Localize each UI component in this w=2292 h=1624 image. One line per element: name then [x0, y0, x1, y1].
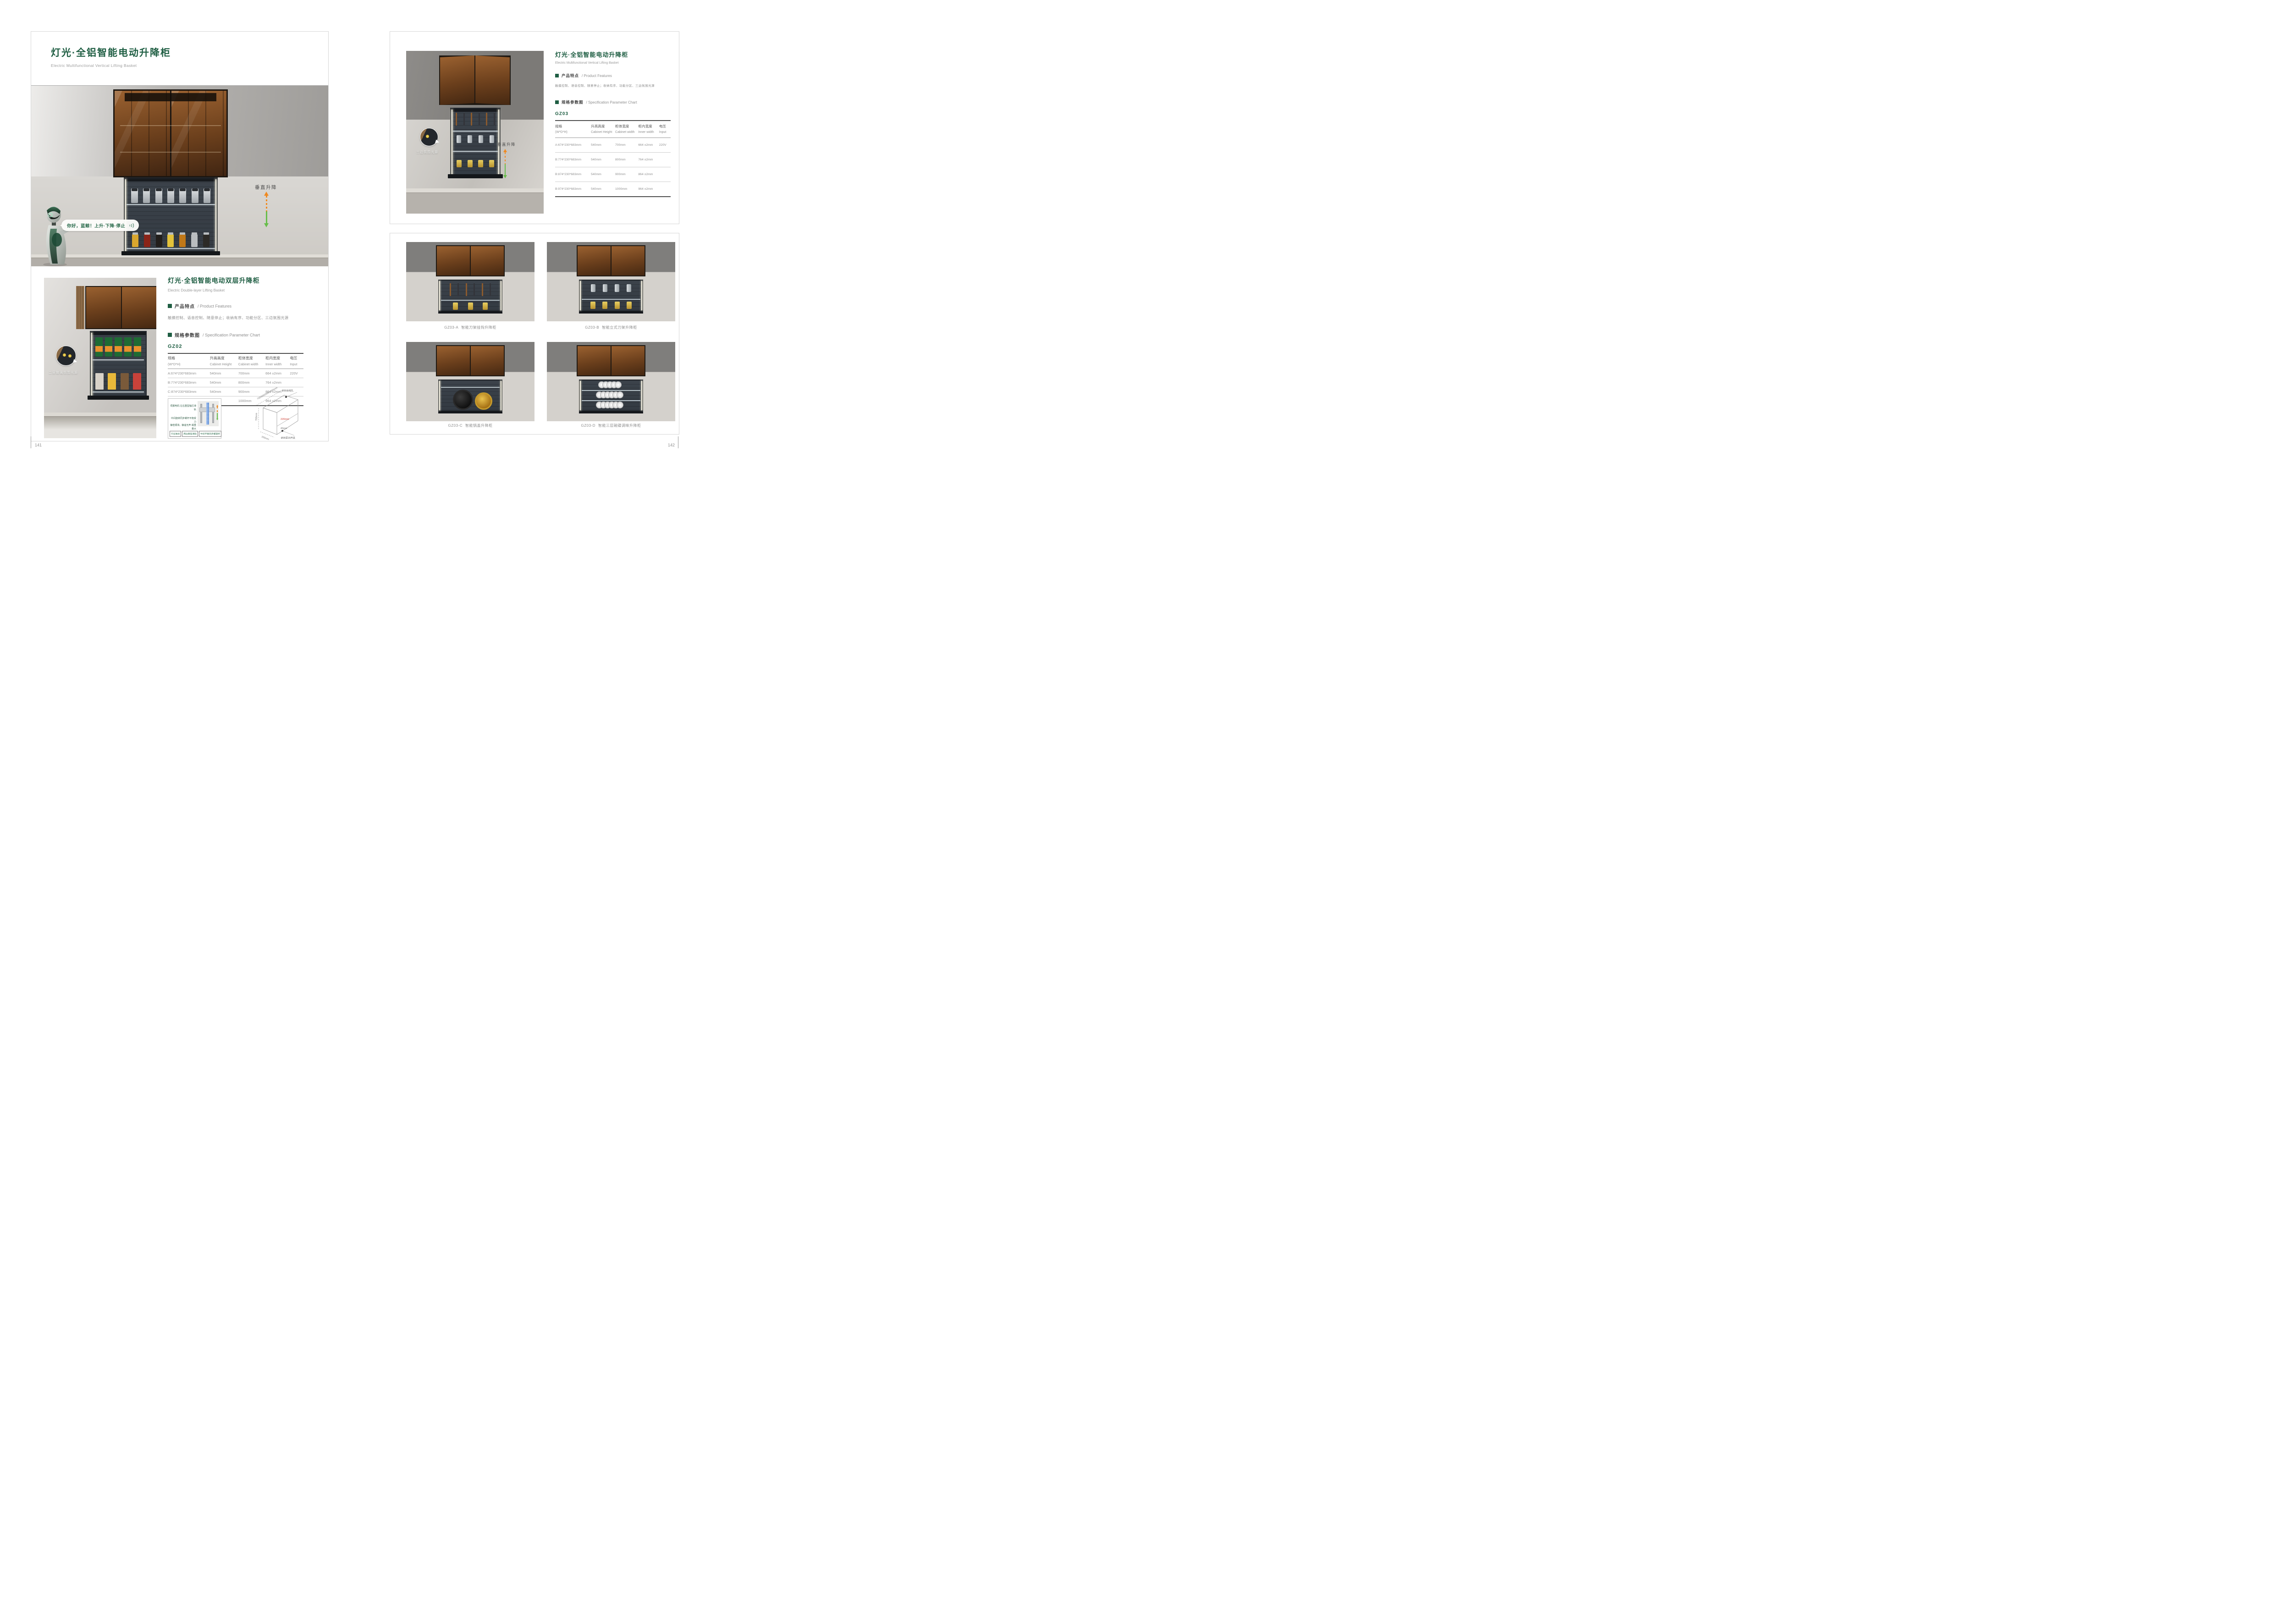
jar [179, 234, 186, 247]
svg-text:330mm: 330mm [261, 435, 269, 440]
led-strip [125, 179, 126, 253]
upper-cabinet [439, 55, 511, 105]
jar [203, 234, 209, 247]
spice-jar [468, 135, 472, 143]
spec-cell: 540mm [591, 167, 615, 182]
pan [453, 390, 473, 410]
features-heading-en: / Product Features [582, 74, 612, 78]
spec-row: B:974*230*683mm540mm1000mm964 ±2mm [555, 182, 671, 197]
column-header: 柜体宽度Cabinet width [615, 121, 638, 138]
model-code: GZ02 [168, 344, 303, 349]
product-name: 智能锅盖升降柜 [465, 424, 493, 428]
spec-cell: A:674*230*683mm [168, 369, 210, 378]
column-header: 电压Input [659, 121, 671, 138]
spec-cell: 864 ±2mm [638, 167, 659, 182]
column-header: 升高高度Cabinet Height [210, 353, 238, 369]
utensil-row [456, 113, 495, 126]
snack-box-row [95, 373, 141, 390]
snack-box [95, 373, 104, 390]
upper-cabinet [577, 345, 645, 376]
spec-cell: 700mm [238, 369, 265, 378]
upper-cabinet [85, 286, 156, 329]
features-heading-zh: 产品特点 [175, 303, 195, 309]
features-heading-en: / Product Features [198, 304, 231, 308]
spec-cell: B:774*230*683mm [555, 153, 591, 167]
utensil [479, 113, 480, 126]
mech-chip: 中间平衡同步螺旋杆 [199, 431, 221, 437]
lifting-basket [124, 177, 218, 254]
canister [155, 188, 162, 203]
green-square-bullet-icon [555, 100, 559, 104]
sound-wave-icon [127, 222, 133, 229]
product-name: 智能刀架挂钩升降柜 [461, 325, 496, 330]
mech-chip: 行业独创 [170, 431, 181, 437]
knife-row [584, 284, 639, 292]
product-name: 智能立式刀架升降柜 [602, 325, 637, 330]
spec-cell: B:974*230*683mm [555, 182, 591, 197]
plate-row [584, 402, 639, 408]
page-subtitle: Electric Multifunctional Vertical Liftin… [555, 61, 671, 65]
spec-row: A:674*230*683mm540mm700mm664 ±2mm220V [168, 369, 303, 378]
svg-text:Ø35深15开关: Ø35深15开关 [281, 436, 295, 440]
spec-cell: A:674*230*683mm [555, 138, 591, 153]
plate-row [584, 391, 639, 398]
upper-cabinet [436, 245, 505, 276]
canister [179, 188, 186, 203]
juice-carton [95, 337, 103, 357]
spec-heading: 规格参数图 / Specification Parameter Chart [168, 331, 303, 338]
snack-box [121, 373, 129, 390]
page-number: 141 [35, 443, 42, 447]
gold-jar [468, 160, 473, 167]
jar [167, 234, 174, 247]
spec-cell: B:774*230*683mm [168, 378, 210, 387]
column-header: 规格(W*D*H) [555, 121, 591, 138]
spec-cell: 540mm [591, 138, 615, 153]
double-layer-product-photo: 二层玻璃氛围光源 [44, 278, 156, 438]
mechanism-graphic [198, 401, 219, 426]
callout-label: 三边氛围光源 [416, 150, 438, 154]
snack-box [133, 373, 141, 390]
callout-label: 二层玻璃氛围光源 [49, 370, 78, 375]
canister-row [131, 188, 210, 203]
product-code: GZ03-C [448, 424, 463, 428]
product-photo-gz03-c [406, 342, 534, 421]
spec-cell: 800mm [615, 153, 638, 167]
countertop [406, 188, 544, 193]
left-page-header: 灯光·全铝智能电动升降柜 Electric Multifunctional Ve… [51, 45, 171, 68]
lifting-basket [579, 280, 643, 314]
svg-text:Ø35出线孔: Ø35出线孔 [282, 389, 294, 392]
glass-shelf [120, 152, 221, 153]
spec-cell [659, 167, 671, 182]
product-code: GZ03-A [444, 325, 458, 330]
product-caption: GZ03-D智能三层碗碟调味升降柜 [547, 423, 675, 428]
upper-cabinet [577, 245, 645, 276]
column-header: 柜内宽度Inner width [265, 353, 290, 369]
glass-shelf [127, 204, 215, 205]
upper-cabinet [436, 345, 505, 376]
jar-row [584, 302, 639, 309]
spec-cell: 540mm [210, 369, 238, 378]
page-right-bottom: GZ03-A智能刀架挂钩升降柜 GZ03-B智能立式刀架升降柜 [390, 233, 679, 435]
juice-carton [134, 337, 141, 357]
product-name: 智能三层碗碟调味升降柜 [598, 424, 641, 428]
green-square-bullet-icon [168, 333, 172, 337]
rack-rail [125, 178, 217, 182]
jar [144, 234, 150, 247]
mech-label-rails: 伺服电机·左右重型轴芯滑轨 [170, 405, 196, 412]
page-number-bar [678, 436, 678, 448]
spice-jar [457, 135, 461, 143]
utensil [486, 113, 487, 126]
glass-shelf [127, 248, 215, 249]
cabinet-door [115, 91, 170, 176]
lift-mechanism [125, 93, 216, 101]
voice-command-bubble: 你好，蓝鲸！上升·下降·停止 [61, 220, 139, 231]
spec-cell: 900mm [615, 167, 638, 182]
spec-cell: 764 ±2mm [638, 153, 659, 167]
page-right-top: 三边氛围光源 垂直升降 灯光·全铝智能电动升降柜 Electric Multif… [390, 31, 679, 224]
gold-jar [489, 160, 494, 167]
utensil [463, 113, 465, 126]
juice-carton [105, 337, 112, 357]
mech-label-screw-line2: 静密顺滑，静谧无声·载重量大 [170, 424, 196, 431]
catalog-spread: 灯光·全铝智能电动升降柜 Electric Multifunctional Ve… [0, 0, 708, 462]
cabinet-door [171, 91, 227, 176]
page-title: 灯光·全铝智能电动升降柜 [555, 50, 671, 59]
lifting-basket [438, 380, 502, 413]
vertical-lift-product-photo: 三边氛围光源 垂直升降 [406, 51, 544, 214]
column-header: 柜内宽度Inner width [638, 121, 659, 138]
dimension-sketch: 700/800/900/1000mm 700mm 330mm 220mm 46m… [253, 386, 307, 440]
utensil [494, 113, 495, 126]
column-header: 柜体宽度Cabinet width [238, 353, 265, 369]
features-heading: 产品特点 / Product Features [555, 73, 671, 78]
spec-row: B:774*230*683mm540mm800mm764 ±2mm [555, 153, 671, 167]
spec-cell: 540mm [210, 378, 238, 387]
lifting-basket [90, 331, 147, 399]
canister-row [457, 160, 494, 167]
spec-cell: 220V [659, 138, 671, 153]
spec-heading-en: / Specification Parameter Chart [203, 333, 260, 337]
page-subtitle: Electric Multifunctional Vertical Liftin… [51, 63, 171, 68]
right-page-info-column: 灯光·全铝智能电动升降柜 Electric Multifunctional Ve… [555, 50, 671, 197]
mech-label-screw-line1: 中间旋转同步螺杆平衡受力 [170, 417, 196, 424]
jar [191, 234, 198, 247]
spec-heading: 规格参数图 / Specification Parameter Chart [555, 99, 671, 105]
spec-cell: 664 ±2mm [265, 369, 290, 378]
spice-jar [479, 135, 483, 143]
page-title: 灯光·全铝智能电动升降柜 [51, 45, 171, 59]
svg-text:700/800/900/1000mm: 700/800/900/1000mm [257, 386, 278, 400]
hero-photo: 你好，蓝鲸！上升·下降·停止 垂直升降 [31, 86, 328, 266]
product-photo-gz03-d [547, 342, 675, 421]
juice-carton [124, 337, 132, 357]
green-square-bullet-icon [555, 74, 559, 77]
mech-chip: 两边重型滑轨 [182, 431, 198, 437]
page-left: 灯光·全铝智能电动升降柜 Electric Multifunctional Ve… [31, 31, 329, 441]
lift-arrows-icon [503, 149, 507, 178]
lifting-basket [438, 280, 502, 314]
spec-cell: 540mm [591, 182, 615, 197]
model-code: GZ03 [555, 111, 671, 116]
jar [156, 234, 162, 247]
lift-direction-label: 垂直升降 [255, 184, 277, 191]
base-cabinet [44, 417, 156, 438]
spec-cell: 700mm [615, 138, 638, 153]
juice-carton-row [95, 337, 141, 357]
spec-row: A:674*230*683mm540mm700mm664 ±2mm220V [555, 138, 671, 153]
utensil [456, 113, 457, 126]
led-strip [215, 179, 216, 253]
mechanism-diagram: 伺服电机·左右重型轴芯滑轨 中间旋转同步螺杆平衡受力 静密顺滑，静谧无声·载重量… [168, 398, 221, 439]
spec-row: B:874*230*683mm540mm900mm864 ±2mm [555, 167, 671, 182]
utensil-row [443, 283, 498, 296]
detail-callout [420, 128, 438, 146]
canister [192, 188, 198, 203]
spec-cell: 1000mm [615, 182, 638, 197]
lifting-basket [450, 108, 501, 177]
page-number: 142 [657, 443, 675, 447]
canister [204, 188, 210, 203]
spec-heading-en: / Specification Parameter Chart [586, 100, 637, 105]
detail-callout [56, 346, 76, 366]
jar [132, 234, 138, 247]
spice-row [457, 135, 494, 143]
spec-heading-zh: 规格参数图 [175, 331, 200, 338]
canister [143, 188, 150, 203]
counter-front [406, 193, 544, 214]
features-heading: 产品特点 / Product Features [168, 303, 303, 309]
snack-box [108, 373, 116, 390]
lifting-basket [579, 380, 643, 413]
product-code: GZ03-B [585, 325, 599, 330]
spec-heading-zh: 规格参数图 [562, 99, 584, 105]
lift-arrows-icon [216, 405, 218, 420]
upper-cabinet [113, 89, 228, 177]
page-number-bar [31, 436, 31, 448]
utensil [471, 113, 472, 126]
svg-text:220mm: 220mm [281, 418, 289, 421]
lift-direction-label: 垂直升降 [497, 142, 516, 147]
gold-jar [478, 160, 483, 167]
spec-cell: B:874*230*683mm [555, 167, 591, 182]
spec-cell: 964 ±2mm [638, 182, 659, 197]
product-caption: GZ03-A智能刀架挂钩升降柜 [406, 325, 534, 330]
svg-text:46mm: 46mm [281, 427, 287, 430]
column-header: 电压Input [290, 353, 303, 369]
mech-label-screw: 中间旋转同步螺杆平衡受力 静密顺滑，静谧无声·载重量大 [170, 417, 196, 431]
voice-command-text: 你好，蓝鲸！上升·下降·停止 [67, 222, 125, 229]
rack-base [121, 251, 220, 255]
spec-table-gz03: 规格(W*D*H)升高高度Cabinet Height柜体宽度Cabinet w… [555, 120, 671, 197]
canister [167, 188, 174, 203]
spec-cell: C:874*230*683mm [168, 387, 210, 396]
product-caption: GZ03-C智能锅盖升降柜 [406, 423, 534, 428]
lift-arrows-icon [264, 192, 269, 227]
svg-text:700mm: 700mm [255, 413, 258, 421]
spec-cell: 220V [290, 369, 303, 378]
features-text: 触摸控制、语音控制、随意停止；收纳有序、功能分区、三边氛围光源 [168, 315, 303, 320]
countertop [44, 413, 156, 417]
jar-row [443, 303, 498, 310]
product-caption: GZ03-B智能立式刀架升降柜 [547, 325, 675, 330]
section-title: 灯光·全铝智能电动双层升降柜 [168, 276, 303, 285]
spice-jar [490, 135, 494, 143]
glass-shelf [120, 125, 221, 126]
section-subtitle: Electric Double-layer Lifting Basket [168, 288, 303, 292]
product-photo-gz03-a [406, 242, 534, 321]
pan [475, 392, 492, 410]
column-header: 升高高度Cabinet Height [591, 121, 615, 138]
spec-cell [659, 182, 671, 197]
features-text: 触摸控制、语音控制、随意停止；收纳有序、功能分区、三边氛围光源 [555, 83, 671, 88]
juice-carton [115, 337, 122, 357]
features-heading-zh: 产品特点 [562, 73, 579, 78]
spec-cell: 540mm [591, 153, 615, 167]
plate-row [584, 381, 639, 388]
canister [131, 188, 138, 203]
wood-cabinet [76, 286, 84, 329]
column-header: 规格(W*D*H) [168, 353, 210, 369]
product-code: GZ03-D [581, 424, 595, 428]
spec-cell [659, 153, 671, 167]
product-photo-gz03-b [547, 242, 675, 321]
spec-cell: 540mm [210, 387, 238, 396]
gold-jar [457, 160, 462, 167]
spec-cell: 664 ±2mm [638, 138, 659, 153]
jar-row [132, 234, 209, 247]
green-square-bullet-icon [168, 304, 172, 308]
mech-chip-row: 行业独创 两边重型滑轨 中间平衡同步螺旋杆 [170, 431, 220, 437]
robot-assistant [37, 205, 81, 266]
